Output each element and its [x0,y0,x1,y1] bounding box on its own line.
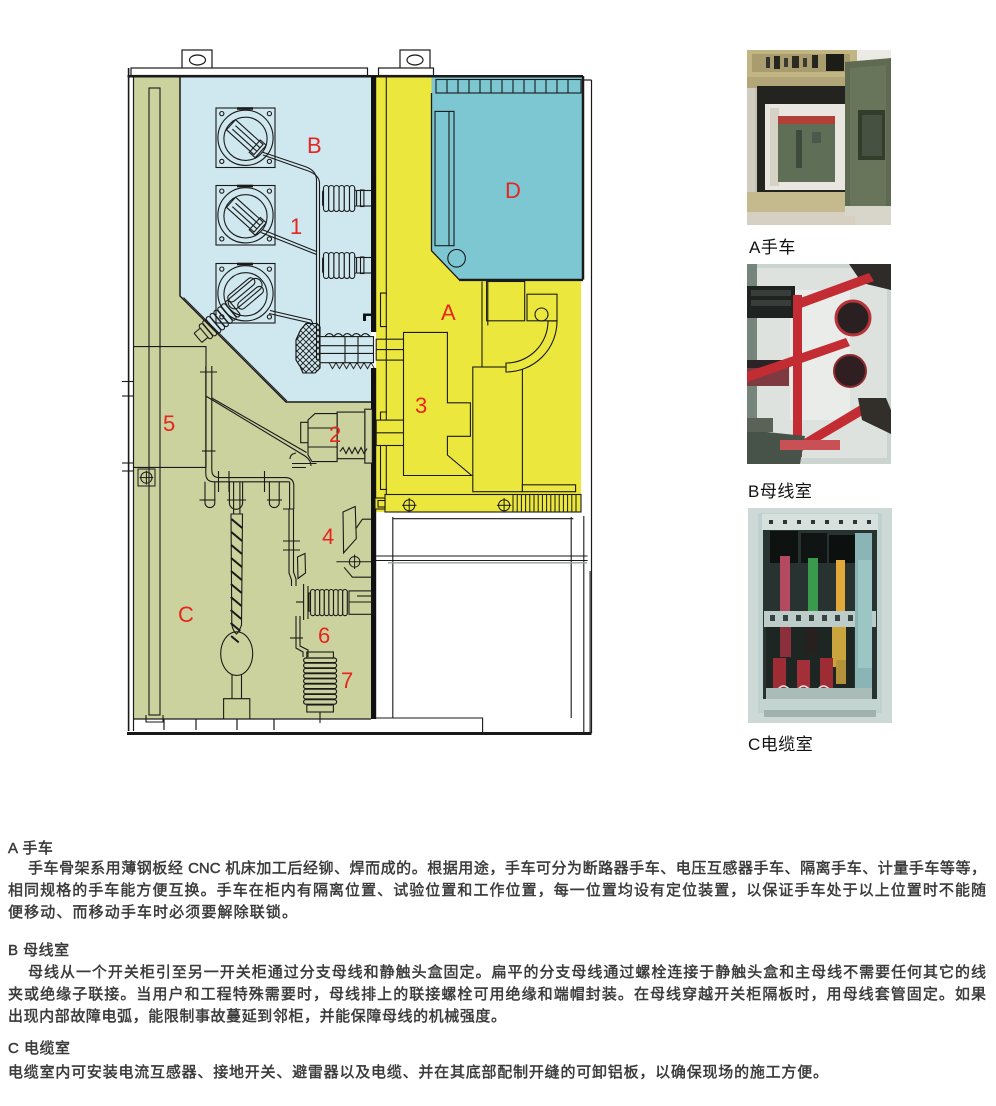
svg-text:5: 5 [163,411,175,436]
svg-text:7: 7 [341,668,353,693]
svg-text:6: 6 [318,623,330,648]
svg-text:D: D [505,178,521,203]
svg-text:2: 2 [329,422,341,447]
svg-text:3: 3 [415,393,427,418]
svg-text:A: A [441,300,456,325]
svg-text:C: C [178,602,194,627]
svg-text:4: 4 [322,524,334,549]
svg-text:B: B [307,133,322,158]
svg-text:1: 1 [290,214,302,239]
